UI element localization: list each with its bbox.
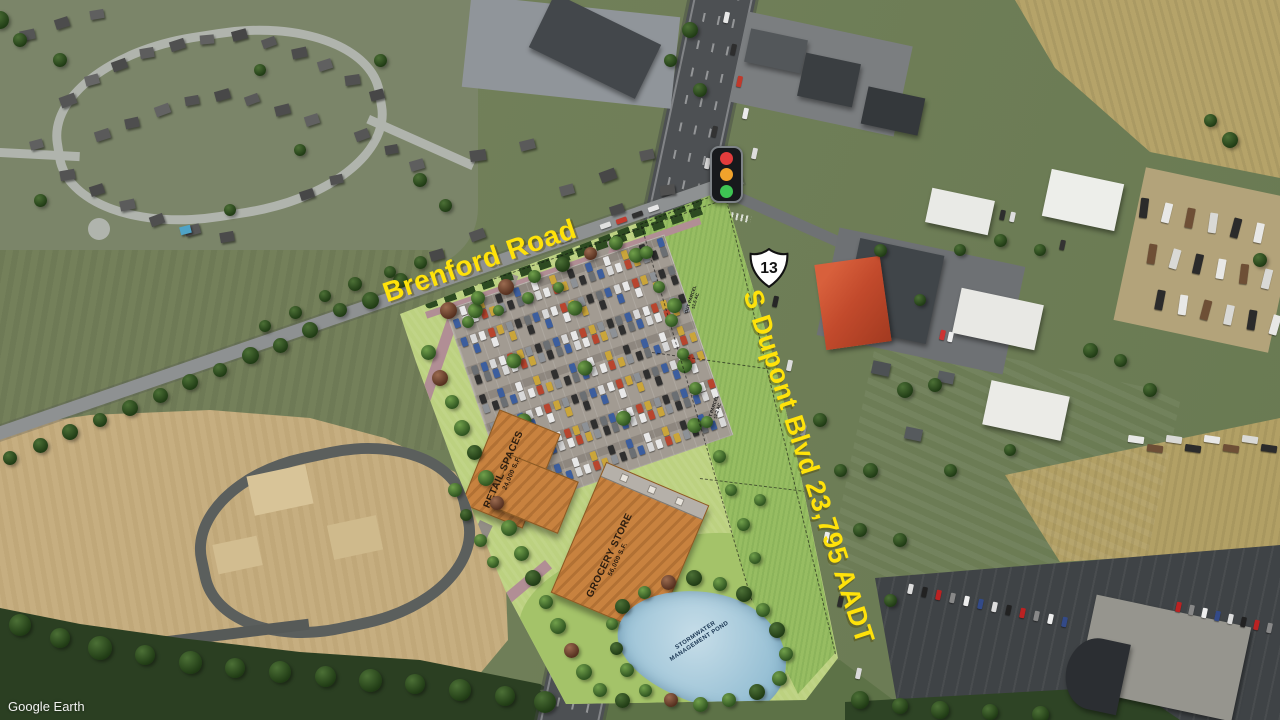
amber-light <box>720 168 733 181</box>
us-route-13-shield: 13 <box>748 248 790 288</box>
dupont-blvd-aadt-label: S Dupont Blvd 23,795 AADT <box>737 286 881 648</box>
traffic-light-icon <box>710 146 743 203</box>
google-earth-watermark: Google Earth <box>8 699 85 714</box>
route-number: 13 <box>760 260 778 277</box>
green-light <box>720 185 733 198</box>
red-light <box>720 152 733 165</box>
annotation-layer: Brenford Road S Dupont Blvd 23,795 AADT … <box>0 0 1280 720</box>
aerial-map: RETAIL SPACES 24,000 S.F. GROCERY STORE … <box>0 0 1280 720</box>
brenford-road-label: Brenford Road <box>379 213 581 309</box>
